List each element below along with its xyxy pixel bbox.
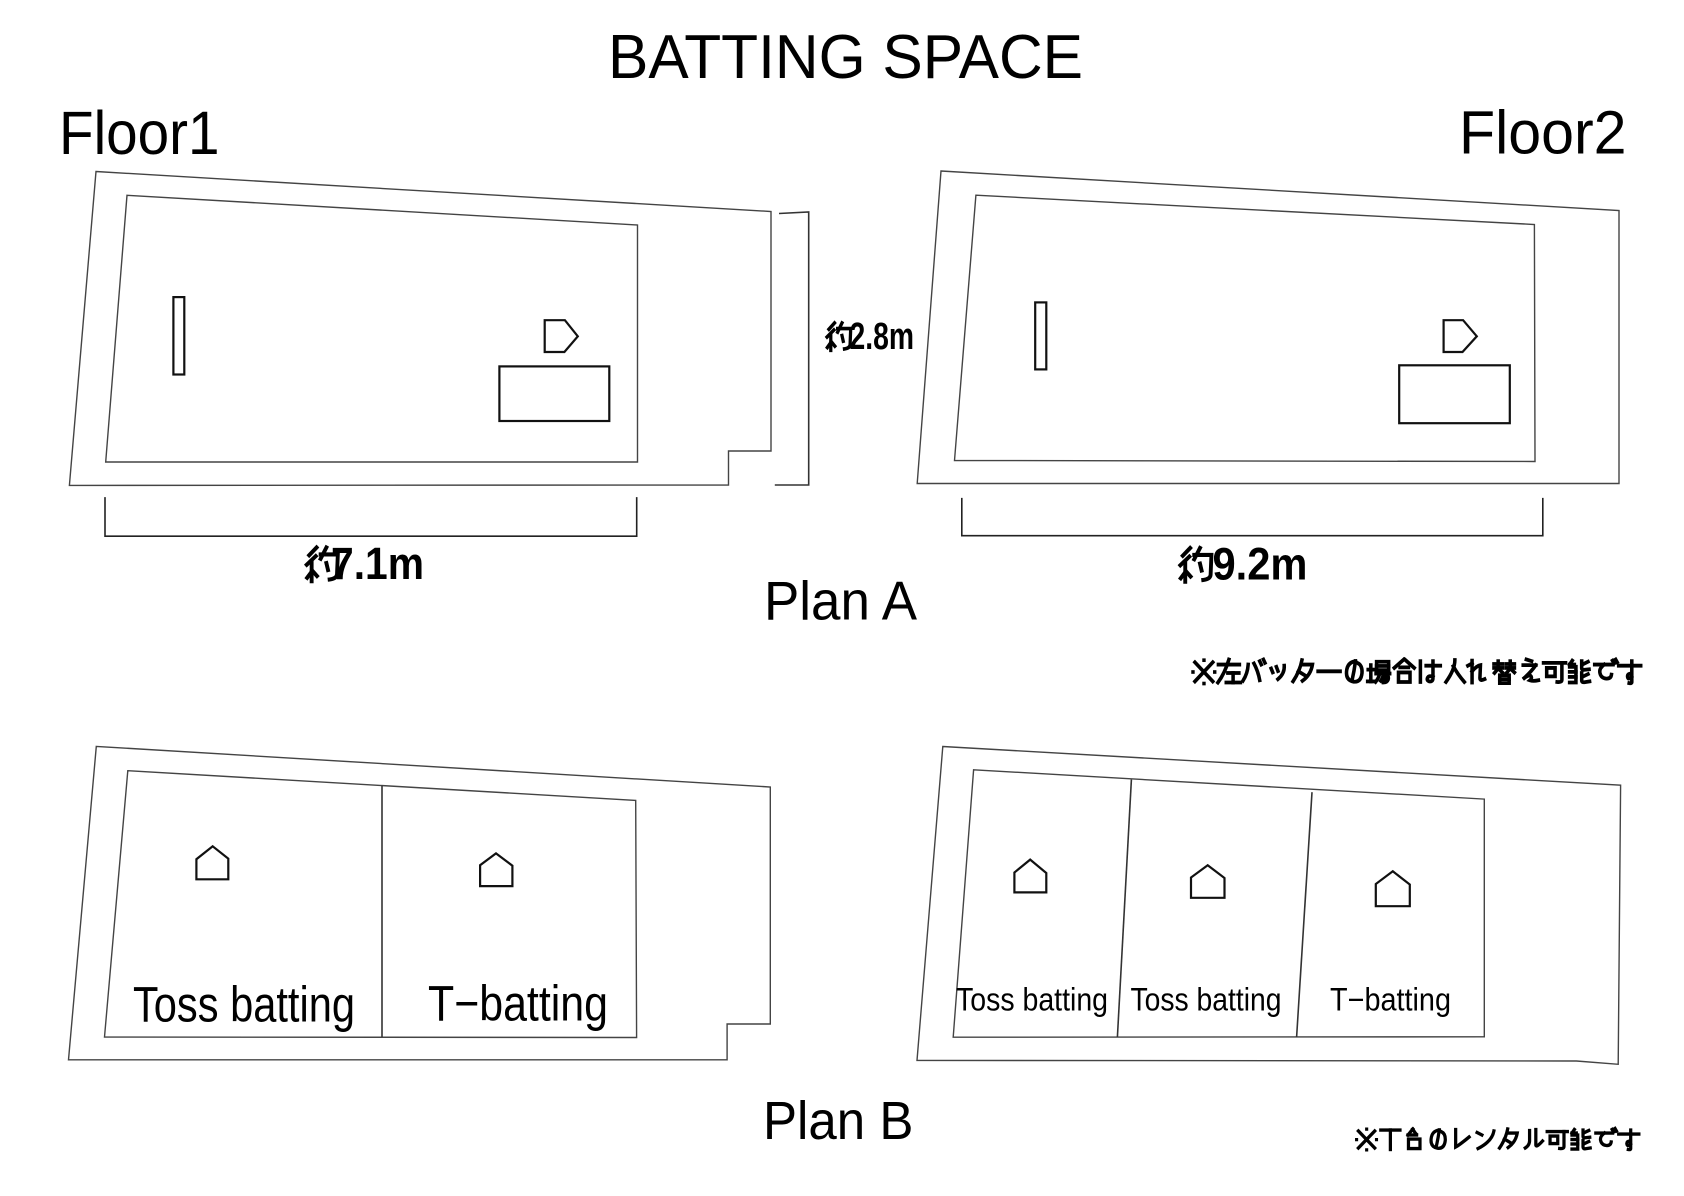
svg-text:T−batting: T−batting	[428, 975, 608, 1032]
svg-text:2.8m: 2.8m	[850, 316, 915, 358]
svg-text:9.2m: 9.2m	[1213, 539, 1308, 590]
svg-text:Floor2: Floor2	[1459, 99, 1627, 167]
svg-text:Toss batting: Toss batting	[133, 975, 355, 1032]
svg-text:Toss batting: Toss batting	[1131, 982, 1282, 1018]
svg-text:Floor1: Floor1	[59, 99, 220, 167]
svg-text:7.1m: 7.1m	[331, 538, 424, 589]
svg-text:Toss batting: Toss batting	[956, 982, 1108, 1018]
svg-text:BATTING SPACE: BATTING SPACE	[608, 23, 1083, 92]
svg-text:T−batting: T−batting	[1330, 982, 1451, 1018]
svg-text:Plan B: Plan B	[763, 1091, 913, 1151]
svg-text:Plan A: Plan A	[764, 570, 917, 632]
